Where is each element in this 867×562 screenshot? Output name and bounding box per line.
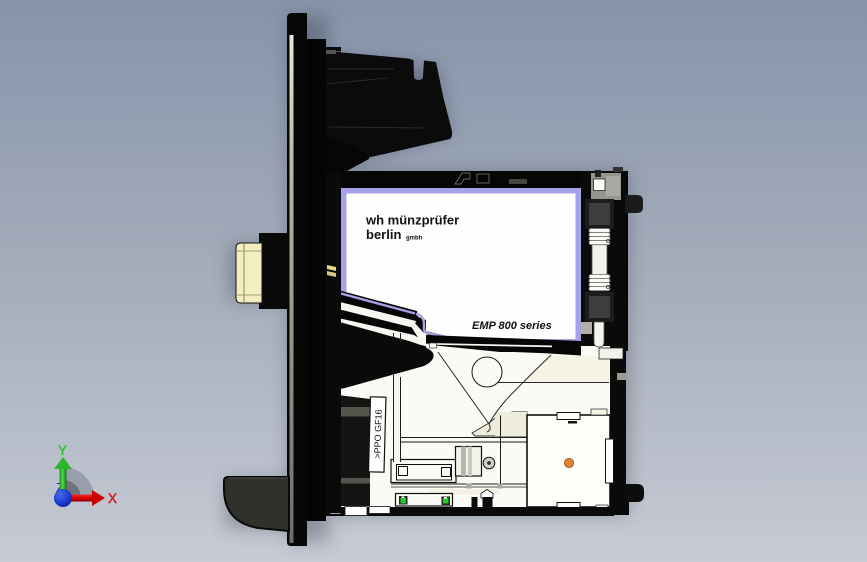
svg-text:Y: Y <box>58 443 67 458</box>
svg-text:X: X <box>108 491 117 506</box>
svg-text:berlin: berlin <box>366 227 401 242</box>
svg-text:EMP 800 series: EMP 800 series <box>472 320 552 332</box>
svg-text:>PPO GF16: >PPO GF16 <box>372 409 383 459</box>
svg-text:wh münzprüfer: wh münzprüfer <box>365 213 459 228</box>
svg-text:gmbh: gmbh <box>406 236 423 242</box>
